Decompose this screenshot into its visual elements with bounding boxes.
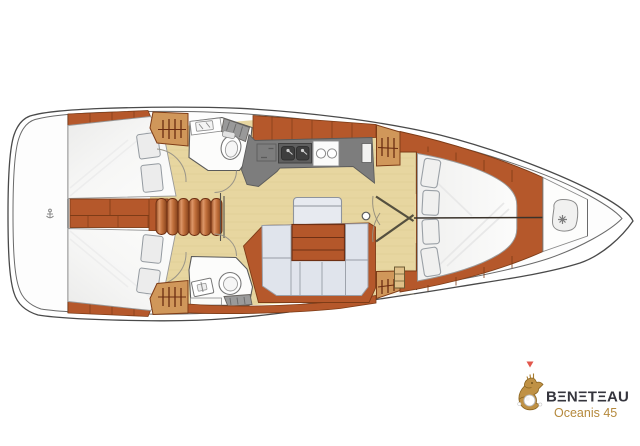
svg-text:Oceanis 45: Oceanis 45	[554, 406, 617, 420]
svg-text:BΞNΞTΞAU: BΞNΞTΞAU	[546, 389, 629, 406]
